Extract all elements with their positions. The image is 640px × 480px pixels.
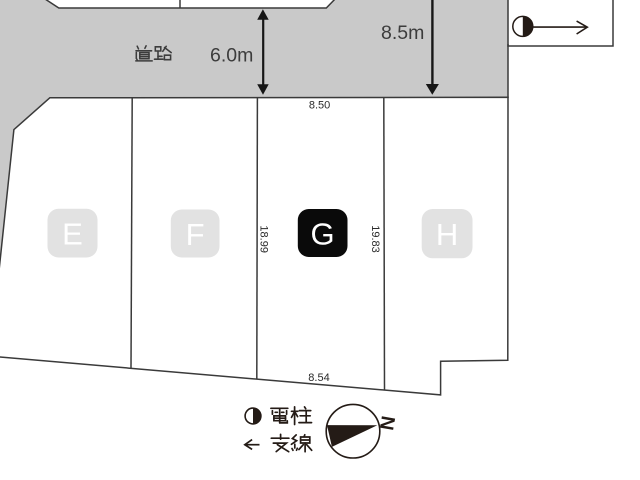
svg-text:E: E [62,217,83,252]
svg-text:8.54: 8.54 [308,372,329,384]
svg-text:G: G [311,216,335,251]
svg-text:H: H [436,217,458,252]
svg-text:18.99: 18.99 [257,225,269,253]
svg-text:6.0m: 6.0m [210,45,253,67]
svg-text:8.50: 8.50 [309,99,330,111]
svg-text:F: F [186,217,205,252]
svg-text:19.83: 19.83 [369,225,381,253]
svg-text:8.5m: 8.5m [381,22,424,44]
